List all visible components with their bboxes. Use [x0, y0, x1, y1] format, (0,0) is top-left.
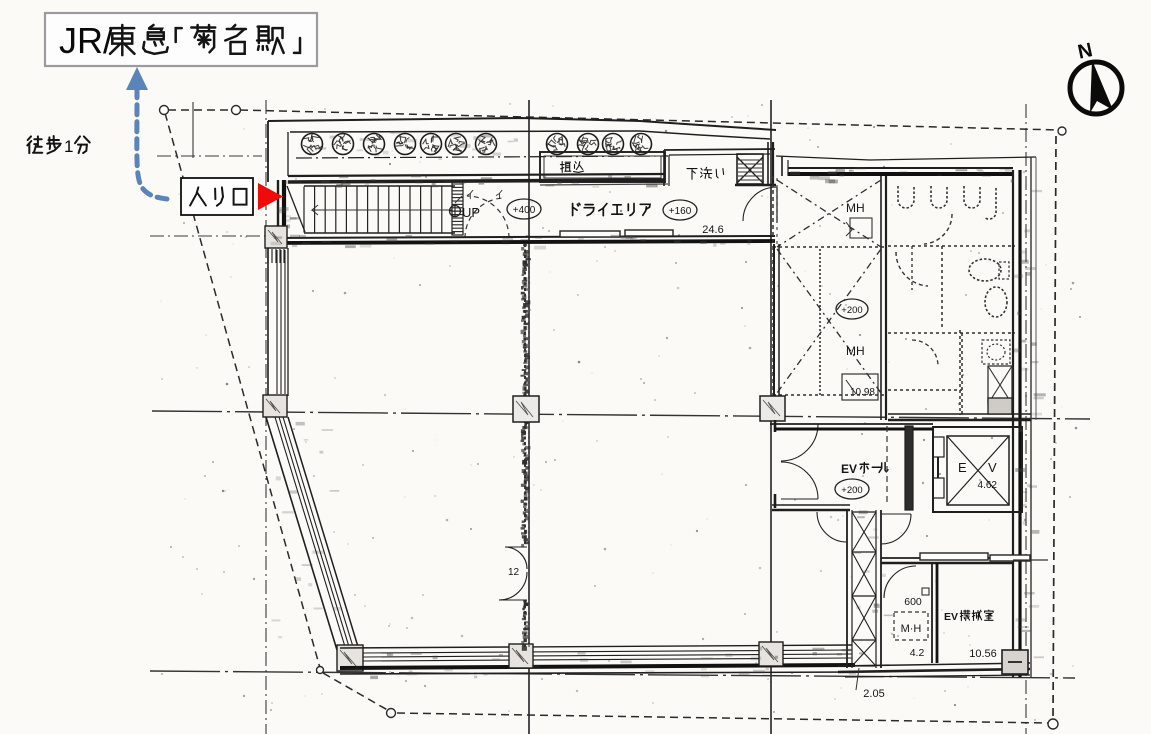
svg-text:24.6: 24.6 — [702, 224, 723, 236]
svg-text:+200: +200 — [841, 485, 862, 496]
svg-text:JR/: JR/ — [59, 20, 113, 61]
svg-text:+160: +160 — [669, 206, 692, 217]
svg-text:12: 12 — [508, 567, 520, 578]
svg-text:10.98: 10.98 — [850, 387, 875, 398]
svg-text:4.62: 4.62 — [978, 480, 998, 491]
svg-text:M·H: M·H — [901, 623, 922, 635]
svg-text:EV: EV — [841, 462, 857, 476]
svg-text:600: 600 — [904, 596, 922, 608]
svg-text:10.56: 10.56 — [969, 648, 997, 660]
svg-text:V: V — [988, 460, 997, 475]
svg-text:+400: +400 — [513, 205, 536, 216]
svg-text:4.2: 4.2 — [910, 647, 925, 659]
svg-text:MH: MH — [846, 201, 865, 215]
svg-text:1: 1 — [64, 137, 73, 156]
svg-text:N: N — [1076, 39, 1095, 64]
svg-text:+200: +200 — [841, 305, 862, 316]
svg-text:E: E — [958, 460, 967, 475]
svg-text:EV: EV — [944, 611, 958, 623]
svg-text:2.05: 2.05 — [863, 688, 884, 700]
svg-text:MH: MH — [846, 344, 865, 358]
